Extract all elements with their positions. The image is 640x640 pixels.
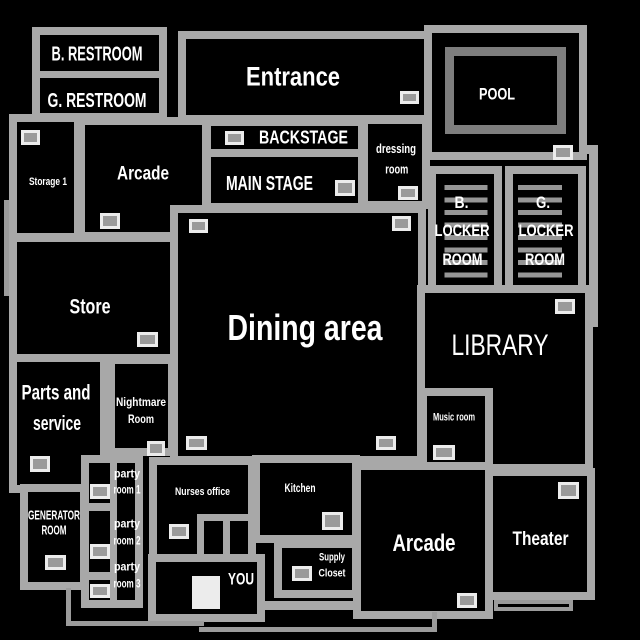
svg-text:Kitchen: Kitchen	[285, 483, 316, 495]
svg-text:party: party	[114, 466, 140, 480]
svg-text:room 1: room 1	[114, 482, 141, 496]
svg-text:Closet: Closet	[319, 568, 346, 580]
svg-text:party: party	[114, 559, 140, 573]
svg-text:room 3: room 3	[114, 576, 141, 590]
svg-text:Storage 1: Storage 1	[29, 176, 67, 188]
svg-text:Parts and: Parts and	[22, 382, 91, 405]
svg-text:G.: G.	[536, 194, 550, 212]
svg-text:dressing: dressing	[376, 141, 416, 156]
svg-text:LIBRARY: LIBRARY	[452, 329, 549, 362]
svg-text:Arcade: Arcade	[393, 530, 456, 557]
svg-text:LOCKER: LOCKER	[435, 222, 490, 240]
svg-text:MAIN STAGE: MAIN STAGE	[226, 173, 313, 195]
svg-text:Nightmare: Nightmare	[116, 395, 166, 409]
svg-text:Music room: Music room	[433, 412, 475, 424]
svg-text:ROOM: ROOM	[525, 251, 565, 269]
svg-text:GENERATOR: GENERATOR	[28, 509, 80, 523]
svg-text:B. RESTROOM: B. RESTROOM	[52, 44, 143, 66]
svg-text:Store: Store	[70, 296, 111, 319]
svg-text:Nurses office: Nurses office	[175, 486, 230, 498]
svg-text:Dining area: Dining area	[228, 307, 384, 348]
svg-text:service: service	[33, 413, 81, 435]
svg-text:BACKSTAGE: BACKSTAGE	[259, 128, 348, 148]
svg-text:ROOM: ROOM	[42, 524, 67, 538]
svg-text:Theater: Theater	[513, 529, 569, 550]
svg-text:Room: Room	[128, 412, 154, 426]
svg-text:LOCKER: LOCKER	[519, 222, 574, 240]
svg-text:party: party	[114, 516, 140, 530]
svg-text:YOU: YOU	[228, 570, 254, 588]
svg-text:room 2: room 2	[114, 533, 141, 547]
svg-text:Entrance: Entrance	[246, 62, 340, 92]
svg-text:POOL: POOL	[479, 85, 515, 104]
svg-text:Supply: Supply	[319, 552, 346, 564]
svg-text:B.: B.	[455, 194, 469, 212]
svg-text:ROOM: ROOM	[443, 251, 483, 269]
svg-text:room: room	[385, 162, 408, 177]
svg-text:Arcade: Arcade	[117, 163, 169, 185]
svg-text:G. RESTROOM: G. RESTROOM	[48, 90, 147, 112]
